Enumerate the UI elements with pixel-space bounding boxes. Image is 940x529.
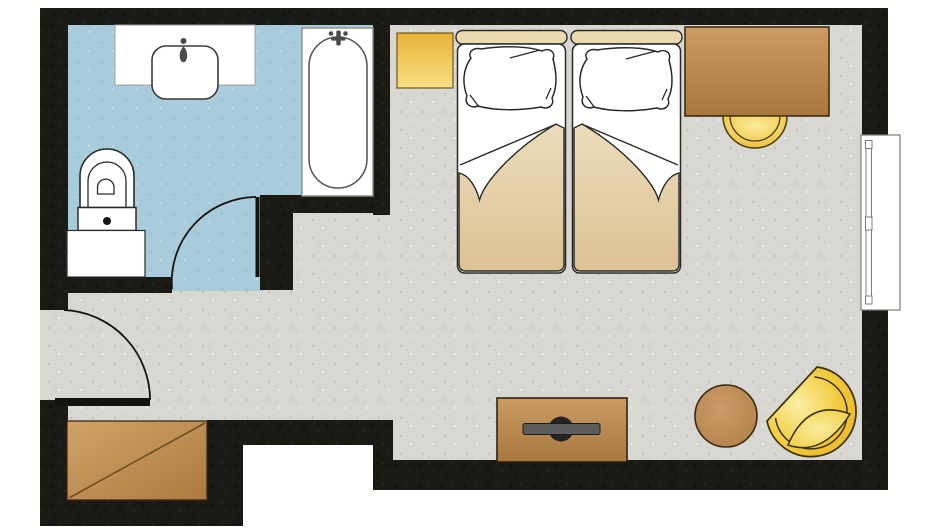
- pillow-outline: [464, 47, 556, 110]
- wall-left-upper: [40, 8, 68, 310]
- nightstand: [397, 33, 453, 88]
- faucet-dot-icon: [181, 38, 187, 44]
- vanity-cabinet: [67, 231, 145, 278]
- window-cap-top: [866, 141, 873, 149]
- wall-bathroom-right: [373, 8, 390, 215]
- bathtub-basin: [309, 37, 367, 188]
- wall-right-lower: [862, 306, 888, 490]
- bathtub: [302, 28, 373, 196]
- wall-bottom-right: [373, 460, 888, 490]
- wall-right-upper: [862, 8, 888, 136]
- toilet-flush-button: [103, 217, 111, 225]
- window: [861, 135, 900, 310]
- side-table: [695, 385, 757, 447]
- headboard: [456, 31, 567, 45]
- tub-tap-dot-icon: [329, 31, 334, 36]
- window-mid-latch: [866, 217, 873, 230]
- headboard: [571, 31, 682, 45]
- tv-screen-bar: [523, 424, 600, 435]
- wall-bathroom-door-jamb: [260, 195, 293, 290]
- window-cap-bottom: [866, 296, 873, 304]
- pillow: [464, 47, 556, 110]
- wall-top: [40, 8, 888, 25]
- floorplan-svg: [0, 0, 940, 529]
- twin-bed-left: [456, 31, 567, 274]
- twin-bed-right: [571, 31, 682, 274]
- tv-area: [497, 398, 627, 462]
- entry-door-panel: [55, 398, 150, 406]
- wall-bathroom-bottom: [40, 277, 172, 293]
- outside-notch: [243, 445, 373, 529]
- tub-spout-icon: [331, 37, 346, 41]
- wall-bottom-left: [207, 420, 393, 445]
- floorplan-image: [0, 0, 940, 529]
- bathroom-door-panel: [256, 197, 260, 277]
- desk: [685, 27, 829, 116]
- tub-tap-dot-icon: [343, 31, 348, 36]
- pillow: [580, 48, 672, 111]
- wardrobe: [67, 421, 207, 500]
